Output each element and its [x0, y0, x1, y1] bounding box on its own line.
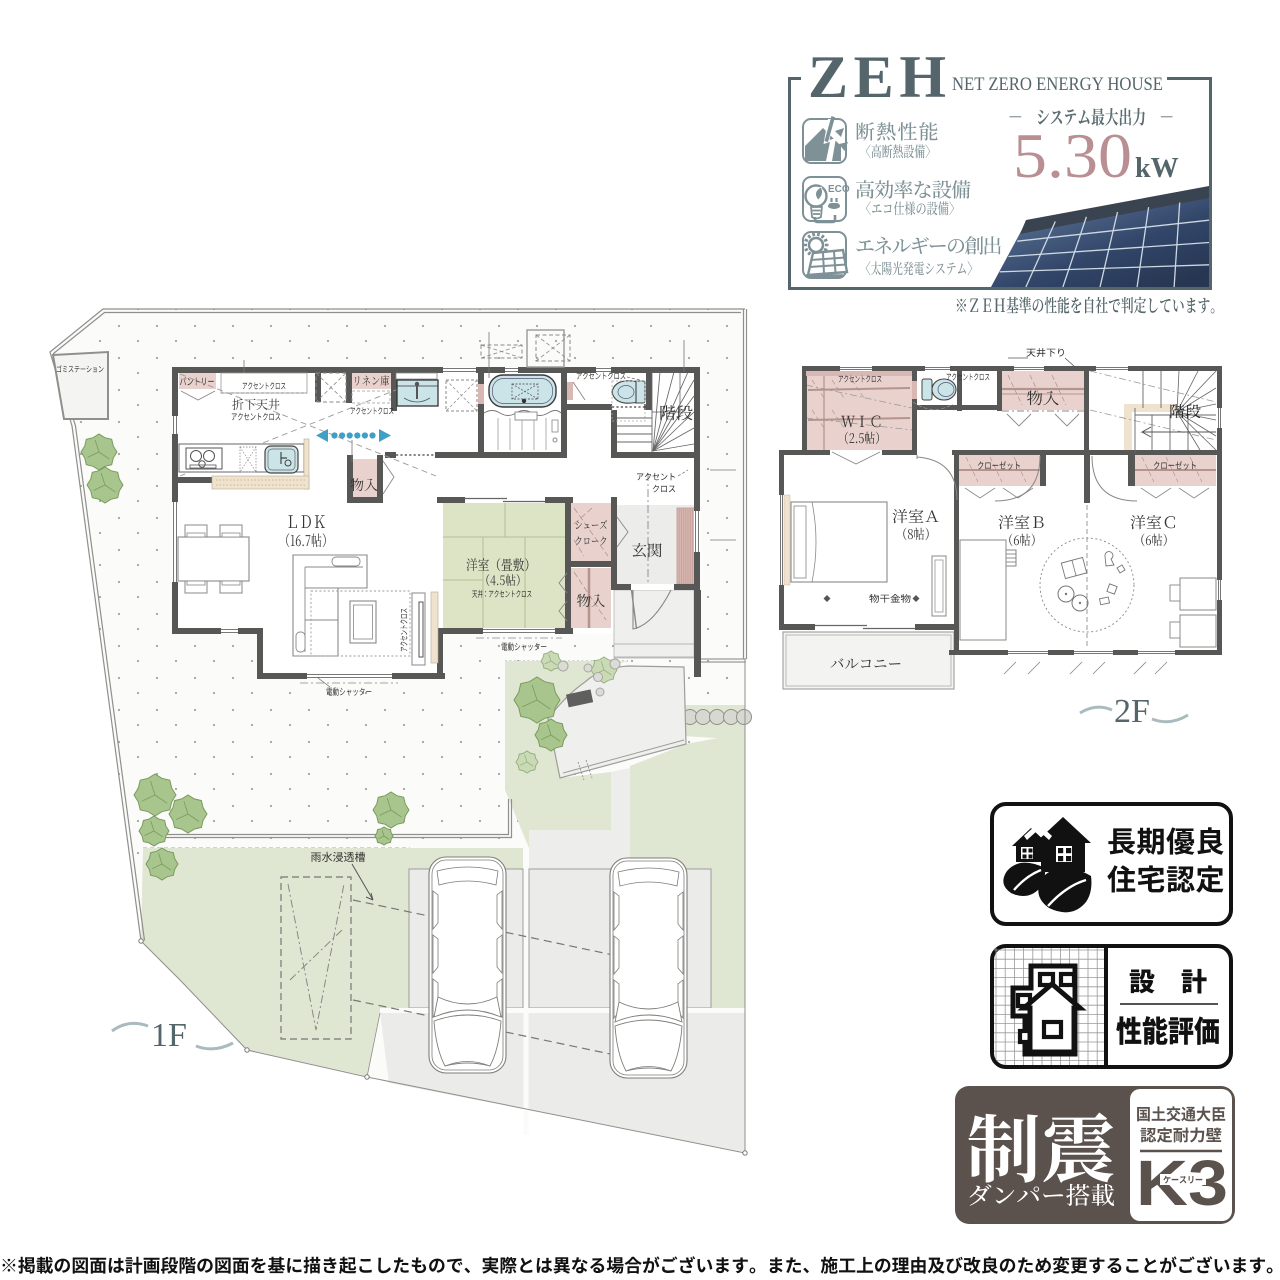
svg-text:2F: 2F [1114, 693, 1150, 730]
svg-text:5.30: 5.30 [1013, 120, 1132, 191]
svg-text:kW: kW [1135, 153, 1179, 184]
svg-text:ECO: ECO [828, 184, 850, 195]
svg-text:1F: 1F [151, 1017, 187, 1054]
svg-text:ZEH: ZEH [808, 44, 946, 110]
svg-text:NET ZERO ENERGY HOUSE: NET ZERO ENERGY HOUSE [952, 74, 1163, 95]
